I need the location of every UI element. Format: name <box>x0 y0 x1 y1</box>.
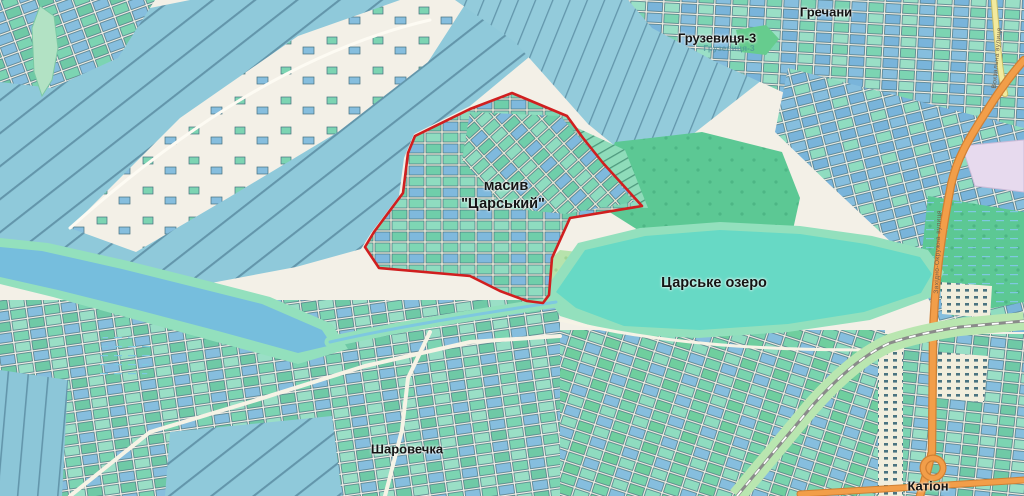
dacha-cluster-b <box>936 352 988 402</box>
dacha-cluster-a <box>940 282 992 318</box>
railway-yard-strip <box>878 338 903 496</box>
map-canvas[interactable]: Гречани Грузевиця-3 Грузевиця-3 масив "Ц… <box>0 0 1024 496</box>
parcels-bottom-center <box>560 330 885 496</box>
stripe-fields-bl-edge <box>0 370 68 496</box>
map-svg <box>0 0 1024 496</box>
marsh-bottom-left <box>98 334 152 382</box>
